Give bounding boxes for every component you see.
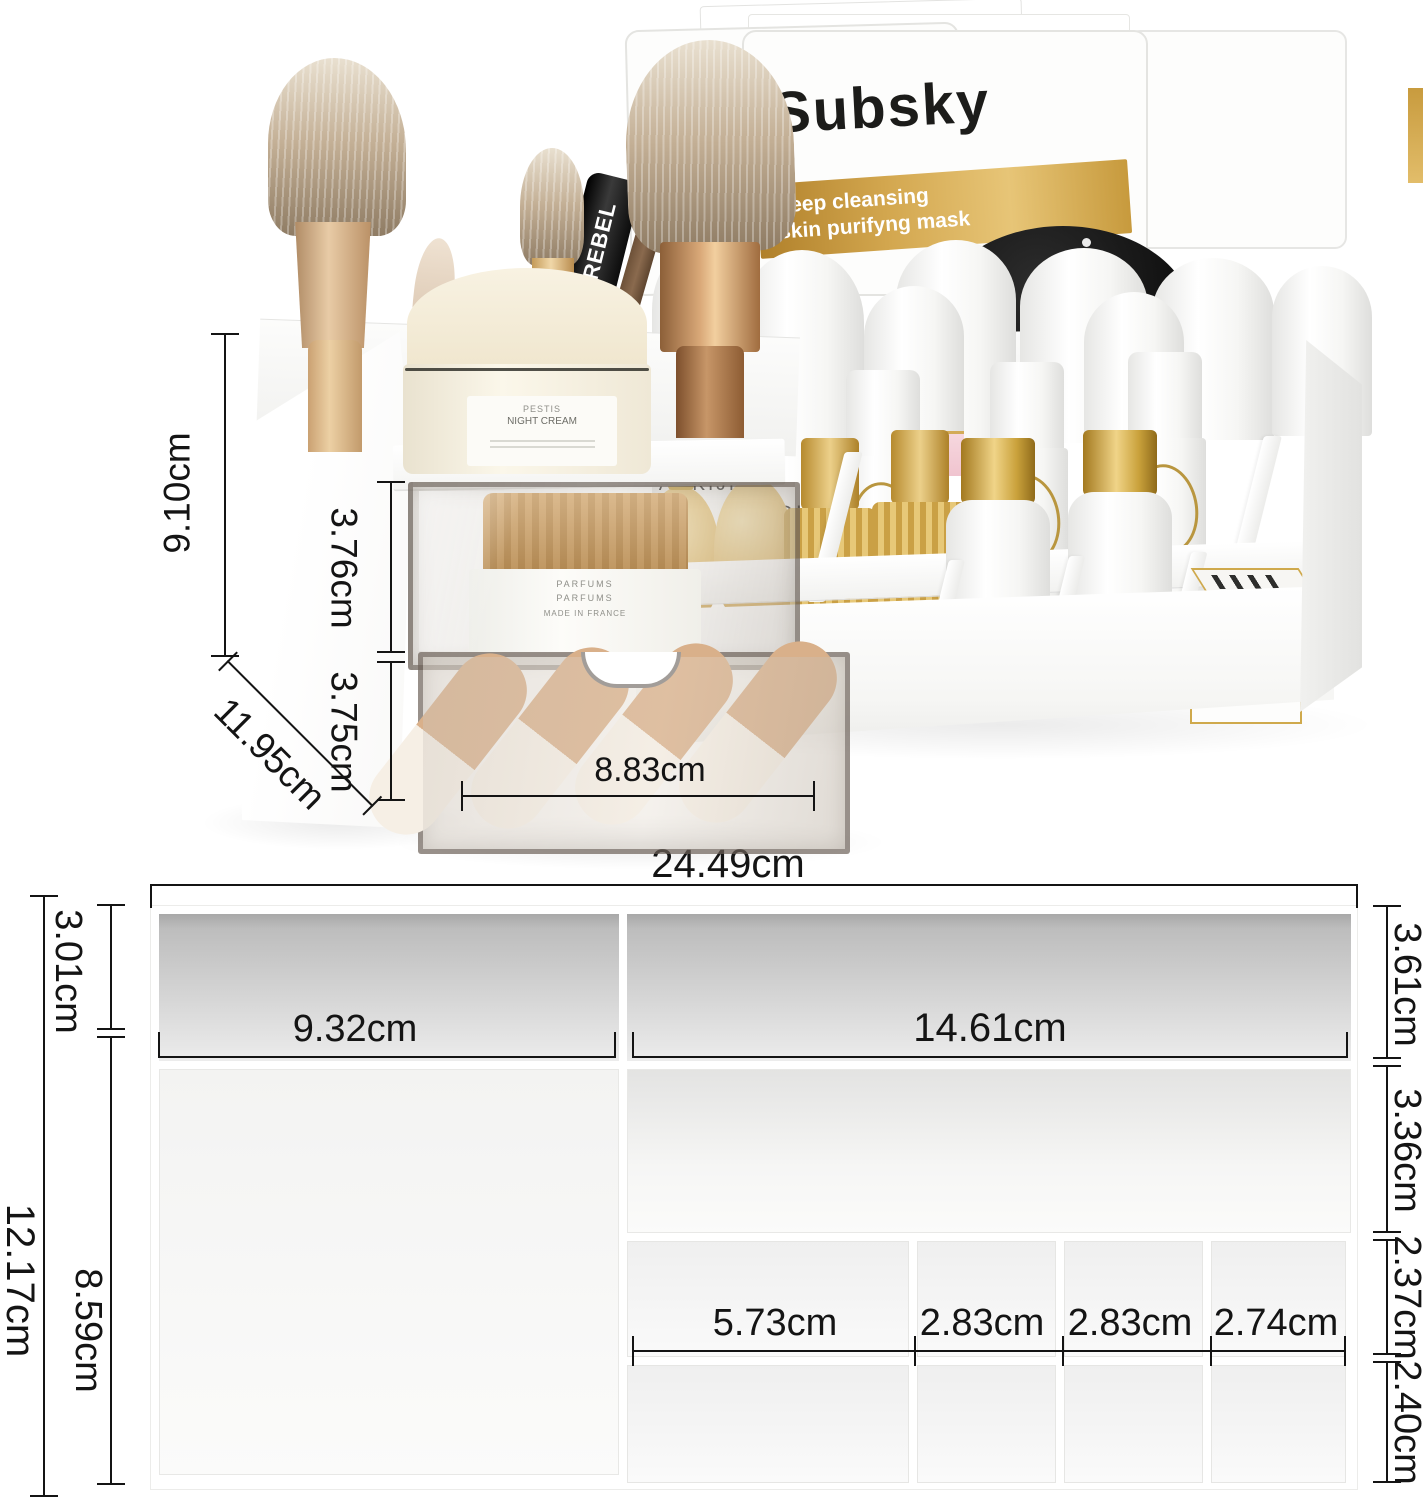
dim-line-drawer2 (390, 662, 392, 800)
dim-label-height: 9.10cm (156, 408, 200, 578)
left-width-value: 9.32cm (293, 1008, 418, 1051)
dim-line-drawer-width (461, 795, 815, 797)
cell-row2-depth-value: 2.40cm (1385, 1360, 1423, 1485)
drawer-width-value: 8.83cm (594, 751, 706, 790)
lipstick-box-marks (1211, 575, 1280, 589)
drawer-1-glare (419, 491, 549, 651)
white-pouch-right (1128, 30, 1347, 249)
dim-label-drawer1: 3.76cm (322, 498, 366, 638)
depth-value: 11.95cm (206, 690, 334, 818)
dim-label-right-back-depth: 3.61cm (1388, 928, 1423, 1040)
left-back-depth-value: 3.01cm (46, 909, 89, 1034)
dim-label-drawer-width: 8.83cm (570, 749, 730, 791)
right-back-depth-value: 3.61cm (1385, 922, 1423, 1047)
round-brush-handle (676, 346, 744, 438)
babor-right-cap (1083, 430, 1157, 496)
col3-width-value: 2.83cm (1068, 1302, 1193, 1345)
cell-row1-depth-value: 2.37cm (1385, 1235, 1423, 1360)
height-value: 9.10cm (157, 432, 199, 553)
drawer1-height-value: 3.76cm (323, 507, 365, 628)
dim-label-col2: 2.83cm (907, 1302, 1057, 1344)
mini-3-cap (1128, 352, 1202, 442)
dim-label-left-width: 9.32cm (270, 1008, 440, 1050)
dim-label-left-main-depth: 8.59cm (65, 1230, 109, 1430)
right-width-value: 14.61cm (913, 1006, 1066, 1051)
drawer-2: 8.83cm (418, 652, 850, 854)
round-brush-ferrule (660, 242, 760, 352)
dim-label-right-width: 14.61cm (890, 1006, 1090, 1050)
night-cream-jar: PESTIS NIGHT CREAM (403, 268, 651, 474)
compact-highlight-dot (1082, 238, 1091, 247)
small-brush-bristles (520, 148, 584, 266)
dim-line-left-width (158, 1056, 616, 1058)
dim-line-grid-columns (632, 1350, 1346, 1352)
dim-label-depth: 11.95cm (192, 696, 348, 812)
dim-line-drawer1 (390, 482, 392, 652)
cell-right-mid (627, 1069, 1351, 1233)
cream-jar-fineprint (490, 440, 595, 452)
babor-left-cap (961, 438, 1035, 504)
gold-sliver-right-edge (1408, 88, 1423, 183)
dim-label-col4: 2.74cm (1201, 1302, 1351, 1344)
right-organizer-side-face (1300, 340, 1362, 712)
top-view-diagram (150, 905, 1358, 1490)
flat-brush-bristles (268, 58, 406, 236)
right-mid-depth-value: 3.36cm (1385, 1088, 1423, 1213)
total-depth-value: 12.17cm (0, 1203, 43, 1356)
flat-brush-ferrule (290, 222, 376, 348)
dim-label-right-mid-depth: 3.36cm (1388, 1094, 1423, 1206)
cell-left-main (159, 1069, 619, 1475)
left-main-depth-value: 8.59cm (66, 1268, 109, 1393)
cream-jar-seam (405, 368, 649, 371)
dim-line-total-width (150, 884, 1358, 886)
cell-grid-r2c3 (1064, 1365, 1203, 1483)
col1-width-value: 5.73cm (713, 1302, 838, 1345)
dim-line-left-main-depth (110, 1037, 112, 1484)
product-dimension-image: Subsky deep cleansing skin purifyng mask… (0, 0, 1423, 1500)
dim-label-left-back-depth: 3.01cm (45, 916, 89, 1026)
perfume-2-cap (891, 430, 949, 504)
dim-label-col1: 5.73cm (700, 1302, 850, 1344)
cell-grid-r2c2 (917, 1365, 1056, 1483)
dim-line-left-back-depth (110, 905, 112, 1029)
dim-label-cell-row1-depth: 2.37cm (1388, 1242, 1423, 1352)
dim-label-total-depth: 12.17cm (0, 1180, 42, 1380)
dim-line-height (224, 334, 226, 656)
cream-jar-label: PESTIS NIGHT CREAM (467, 396, 617, 466)
cell-grid-r2c1 (627, 1365, 909, 1483)
round-brush-bristles (622, 37, 797, 255)
cream-jar-text1: PESTIS (467, 404, 617, 414)
dim-line-right-width (632, 1056, 1348, 1058)
dim-label-cell-row2-depth: 2.40cm (1388, 1366, 1423, 1478)
col4-width-value: 2.74cm (1214, 1302, 1339, 1345)
cream-jar-text2: NIGHT CREAM (467, 416, 617, 427)
drawer-1: PARFUMS PARFUMS MADE IN FRANCE (408, 482, 800, 670)
col2-width-value: 2.83cm (920, 1302, 1045, 1345)
dim-label-col3: 2.83cm (1055, 1302, 1205, 1344)
flat-brush-handle (308, 340, 362, 452)
cell-grid-r2c4 (1211, 1365, 1346, 1483)
